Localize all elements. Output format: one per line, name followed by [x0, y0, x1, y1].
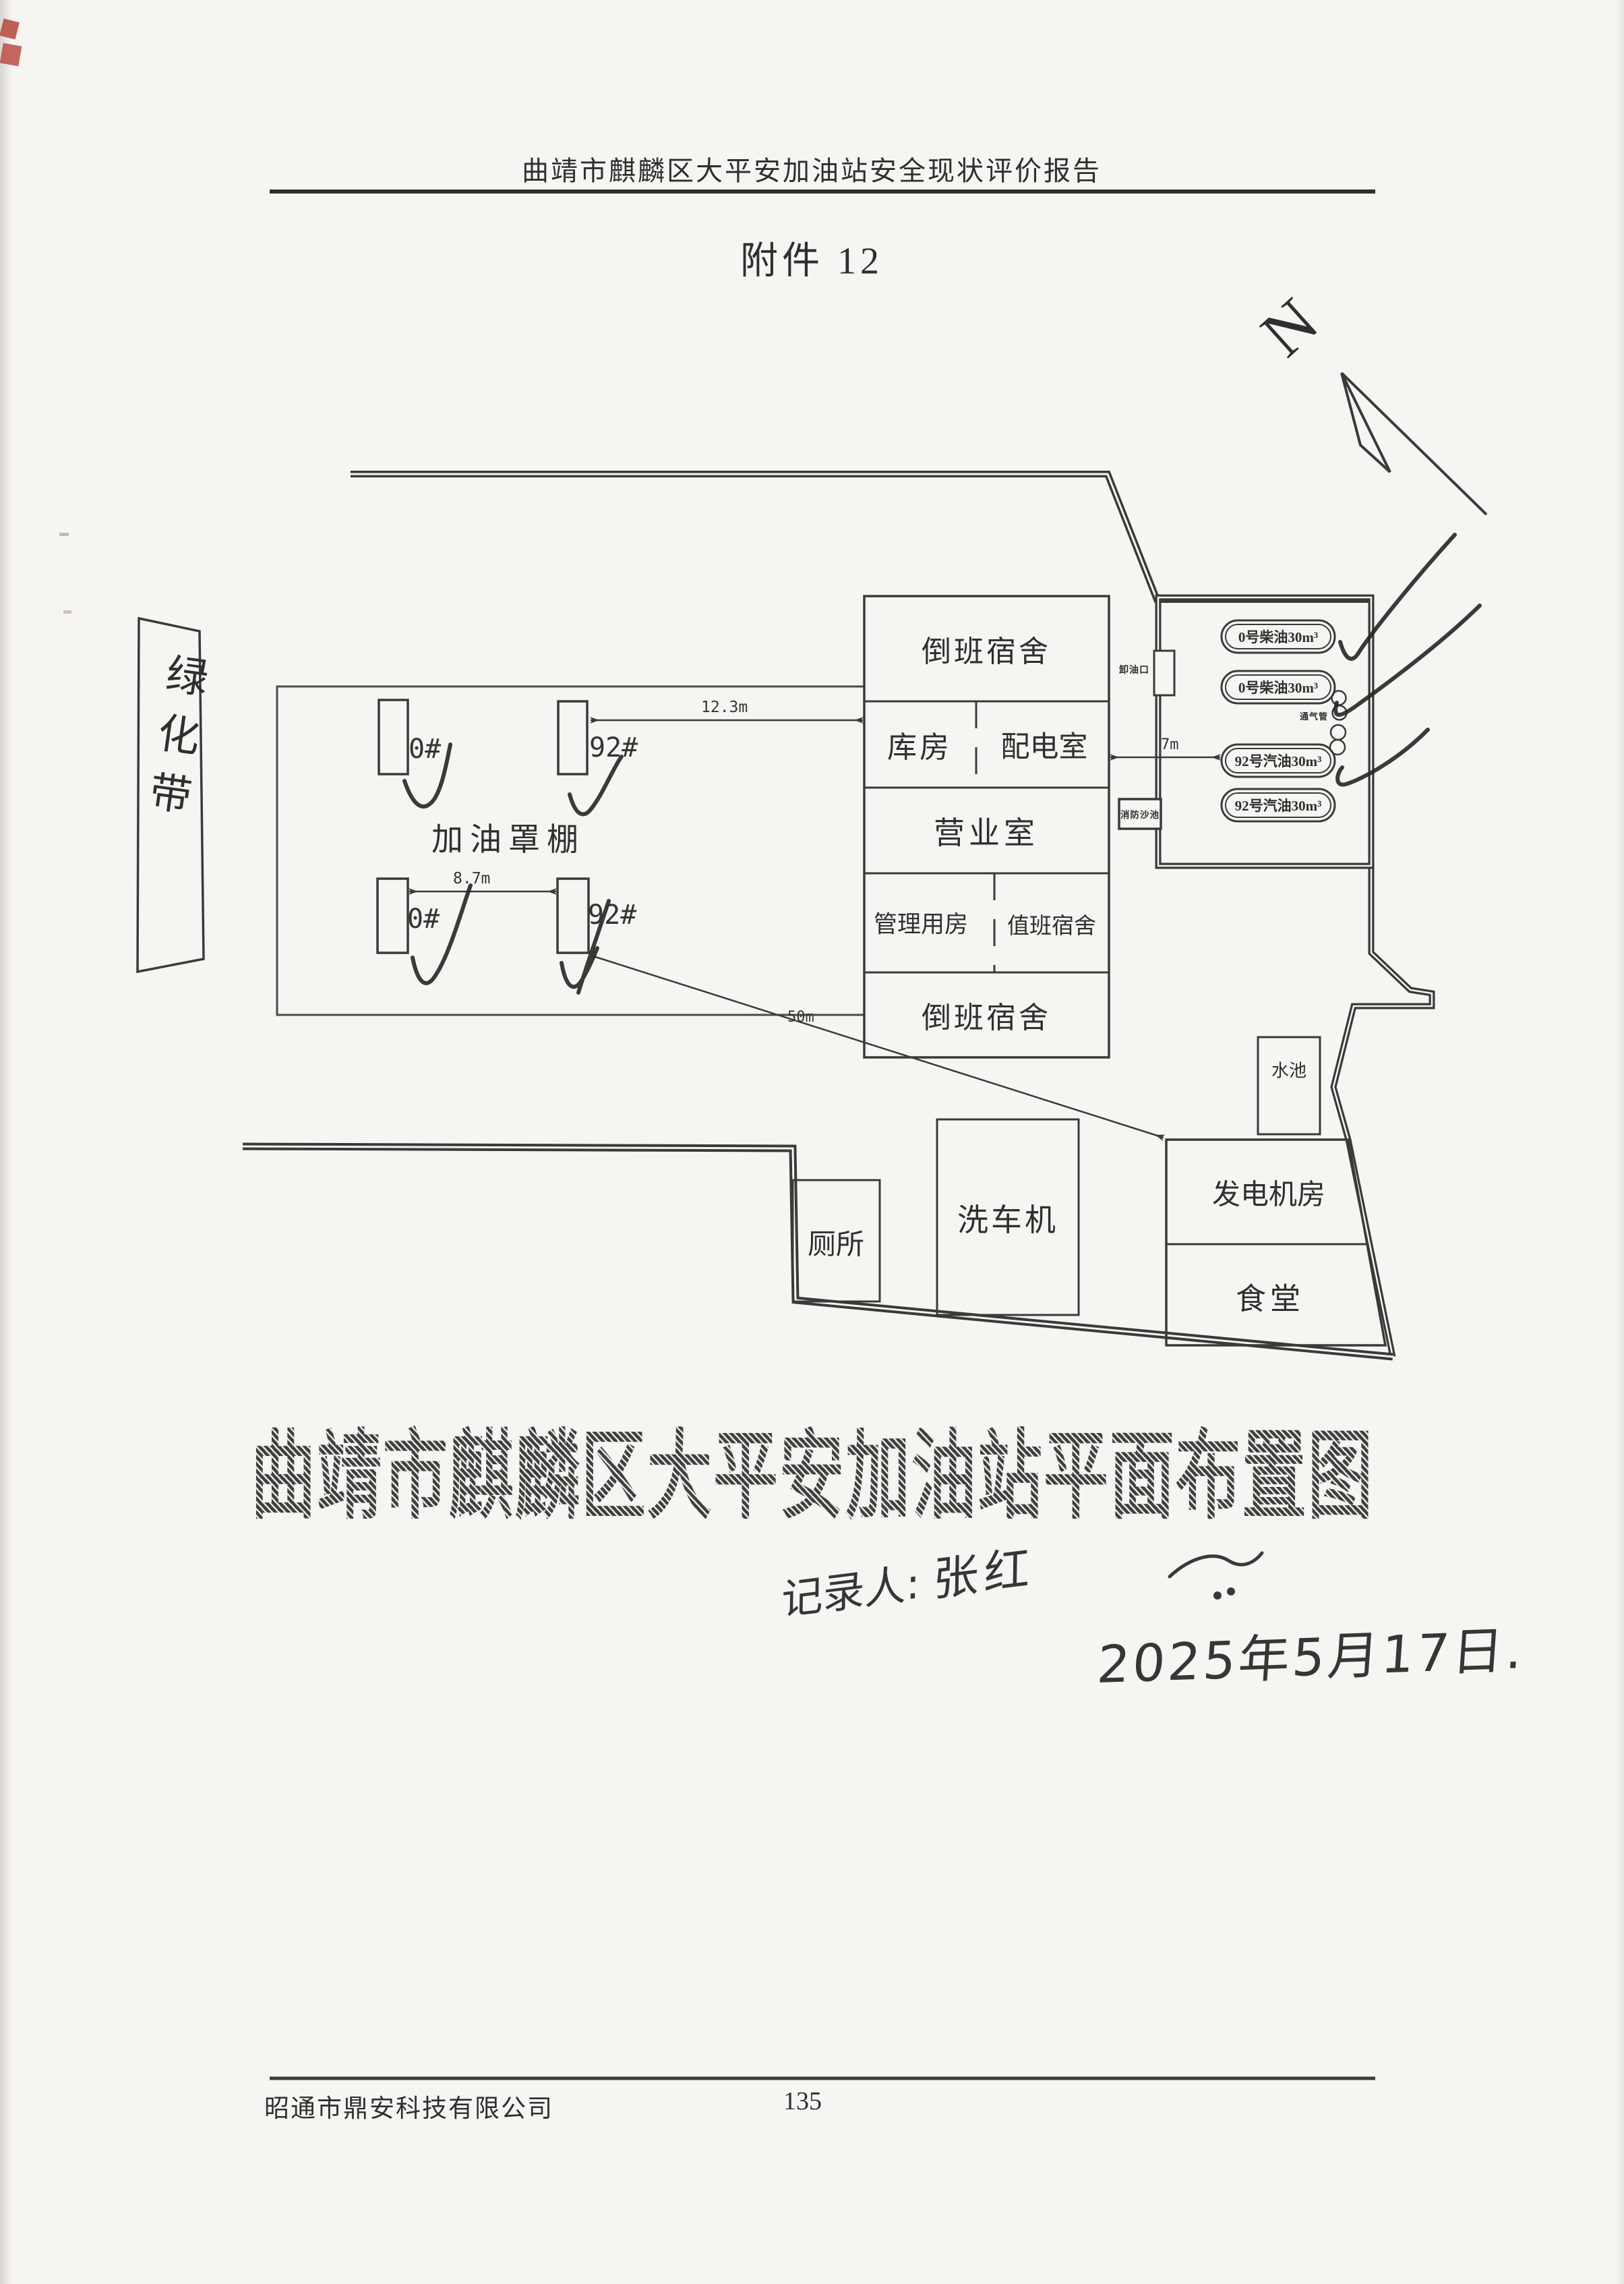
tank-label-2: 92号汽油30m³: [1235, 751, 1322, 771]
room-warehouse: 库房: [887, 723, 952, 766]
scanned-report-page: 曲靖市麒麟区大平安加油站安全现状评价报告 附件 12 N 绿化带 加油罩棚 0#…: [0, 0, 1624, 2284]
tank-label-0: 0号柴油30m³: [1238, 626, 1318, 647]
canteen-label: 食堂: [1236, 1275, 1304, 1318]
unload-port-label: 卸油口: [1119, 663, 1149, 676]
dimension-lines: [409, 720, 1220, 1138]
room-power: 配电室: [1001, 724, 1088, 765]
room-sales: 营业室: [934, 809, 1039, 853]
site-plan-drawing: [0, 0, 1624, 2284]
dim-50m: 50m: [787, 1009, 814, 1026]
dispenser-label-3: 92#: [588, 900, 636, 931]
car-washer-label: 洗车机: [957, 1196, 1058, 1240]
room-management: 管理用房: [874, 906, 968, 940]
red-scan-marks: [0, 18, 22, 66]
unload-port-outline: [1154, 651, 1174, 695]
dispenser-label-1: 92#: [589, 732, 638, 763]
tank-label-1: 0号柴油30m³: [1238, 677, 1318, 697]
dim-12-3m: 12.3m: [701, 699, 748, 716]
dispenser-label-0: 0#: [409, 734, 441, 765]
handwritten-date: 2025年5月17日.: [1095, 1608, 1528, 1697]
vent-pipe-label: 通气管: [1300, 709, 1328, 722]
fire-sand-pool-label: 消防沙池: [1120, 807, 1160, 821]
dim-8-7m: 8.7m: [453, 870, 490, 887]
dispenser-label-2: 0#: [407, 904, 440, 935]
generator-room-label: 发电机房: [1212, 1172, 1325, 1213]
tank-label-3: 92号汽油30m³: [1235, 795, 1322, 815]
vent-pipe-circles: [1330, 691, 1347, 755]
dim-7m: 7m: [1161, 736, 1179, 753]
signature-flourish: [1170, 1553, 1262, 1598]
room-dorm-top: 倒班宿舍: [922, 627, 1051, 670]
page-number: 135: [783, 2086, 822, 2116]
canopy-label: 加油罩棚: [431, 813, 585, 860]
recorder-signature: 张红: [933, 1542, 1035, 1608]
room-dorm-bottom: 倒班宿舍: [922, 993, 1051, 1036]
toilet-label: 厕所: [808, 1222, 864, 1263]
plan-title: 曲靖市麒麟区大平安加油站平面布置图: [216, 1397, 1409, 1538]
room-duty-dorm: 值班宿舍: [1007, 908, 1096, 940]
water-pool-label: 水池: [1271, 1057, 1306, 1082]
footer-company: 昭通市鼎安科技有限公司: [264, 2088, 553, 2124]
attachment-label: 附件 12: [740, 231, 883, 285]
report-title: 曲靖市麒麟区大平安加油站安全现状评价报告: [522, 149, 1102, 188]
water-pool-outline: [1258, 1037, 1320, 1134]
north-arrow-icon: [1342, 373, 1486, 515]
